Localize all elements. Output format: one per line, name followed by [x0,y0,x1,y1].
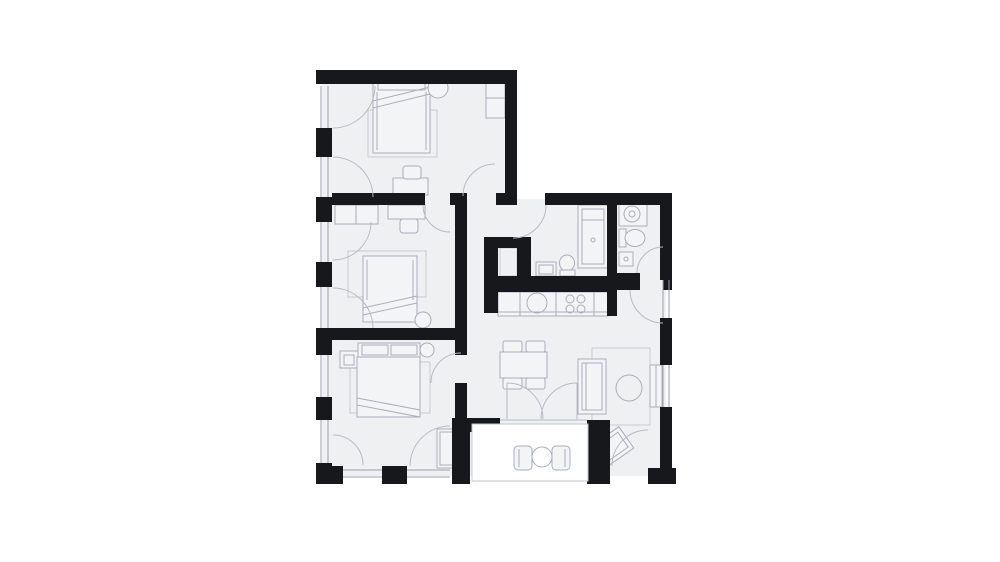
desk [388,205,425,219]
wall-right [660,318,672,365]
dining-chair [526,378,545,389]
round-pillow [415,312,431,328]
wall-wc-bath-divider [607,205,617,316]
wall-pier [316,197,332,222]
wall-bottom-pier [587,420,610,484]
wall-bedroom1-right [505,70,517,205]
balcony-chair-right [552,446,570,470]
floor-plan [0,0,1000,562]
desk-chair [400,219,418,233]
wall-wc-bar [484,237,531,248]
wall-divider-2 [332,328,455,340]
wall-hall-west [455,383,467,418]
wall-top-right-wing [545,193,672,205]
toilet-bowl [625,230,645,247]
wall-pier [316,328,332,355]
wall-pier [316,397,332,420]
wall-bath-bottom [617,273,640,290]
desk [393,178,428,195]
wall-bottom-pier [382,466,407,484]
wall-divider-1 [332,193,425,205]
wall-bottom-corner [648,468,676,484]
wall-hall-west [455,205,467,355]
wall-divider-1 [496,193,511,205]
wall-pier [316,262,332,287]
desk-chair [403,166,421,179]
wall-bottom-corner [316,466,343,484]
dining-chair [526,341,545,352]
wall-corner-block [452,430,470,484]
wall-divider-1 [450,193,467,205]
wall-hall-east [484,237,498,313]
round-stool [420,343,434,357]
bed [363,256,417,322]
balcony [472,424,588,481]
dining-table [500,352,547,378]
wall-pier [316,128,332,157]
wall-right [660,193,672,280]
dining-chair [503,341,522,352]
balcony-chair-left [514,446,532,470]
wall-shaft [517,248,531,276]
wall-kitchen-back [484,276,612,292]
wall-top [316,70,517,84]
toilet-bowl [560,255,575,271]
kitchen-furniture [498,292,608,316]
toilet-tank [560,270,575,276]
small-sink [619,252,633,266]
duct-shaft [500,248,517,276]
bed [373,77,430,153]
wall-right [660,407,672,468]
floor-plan-page [0,0,1000,562]
